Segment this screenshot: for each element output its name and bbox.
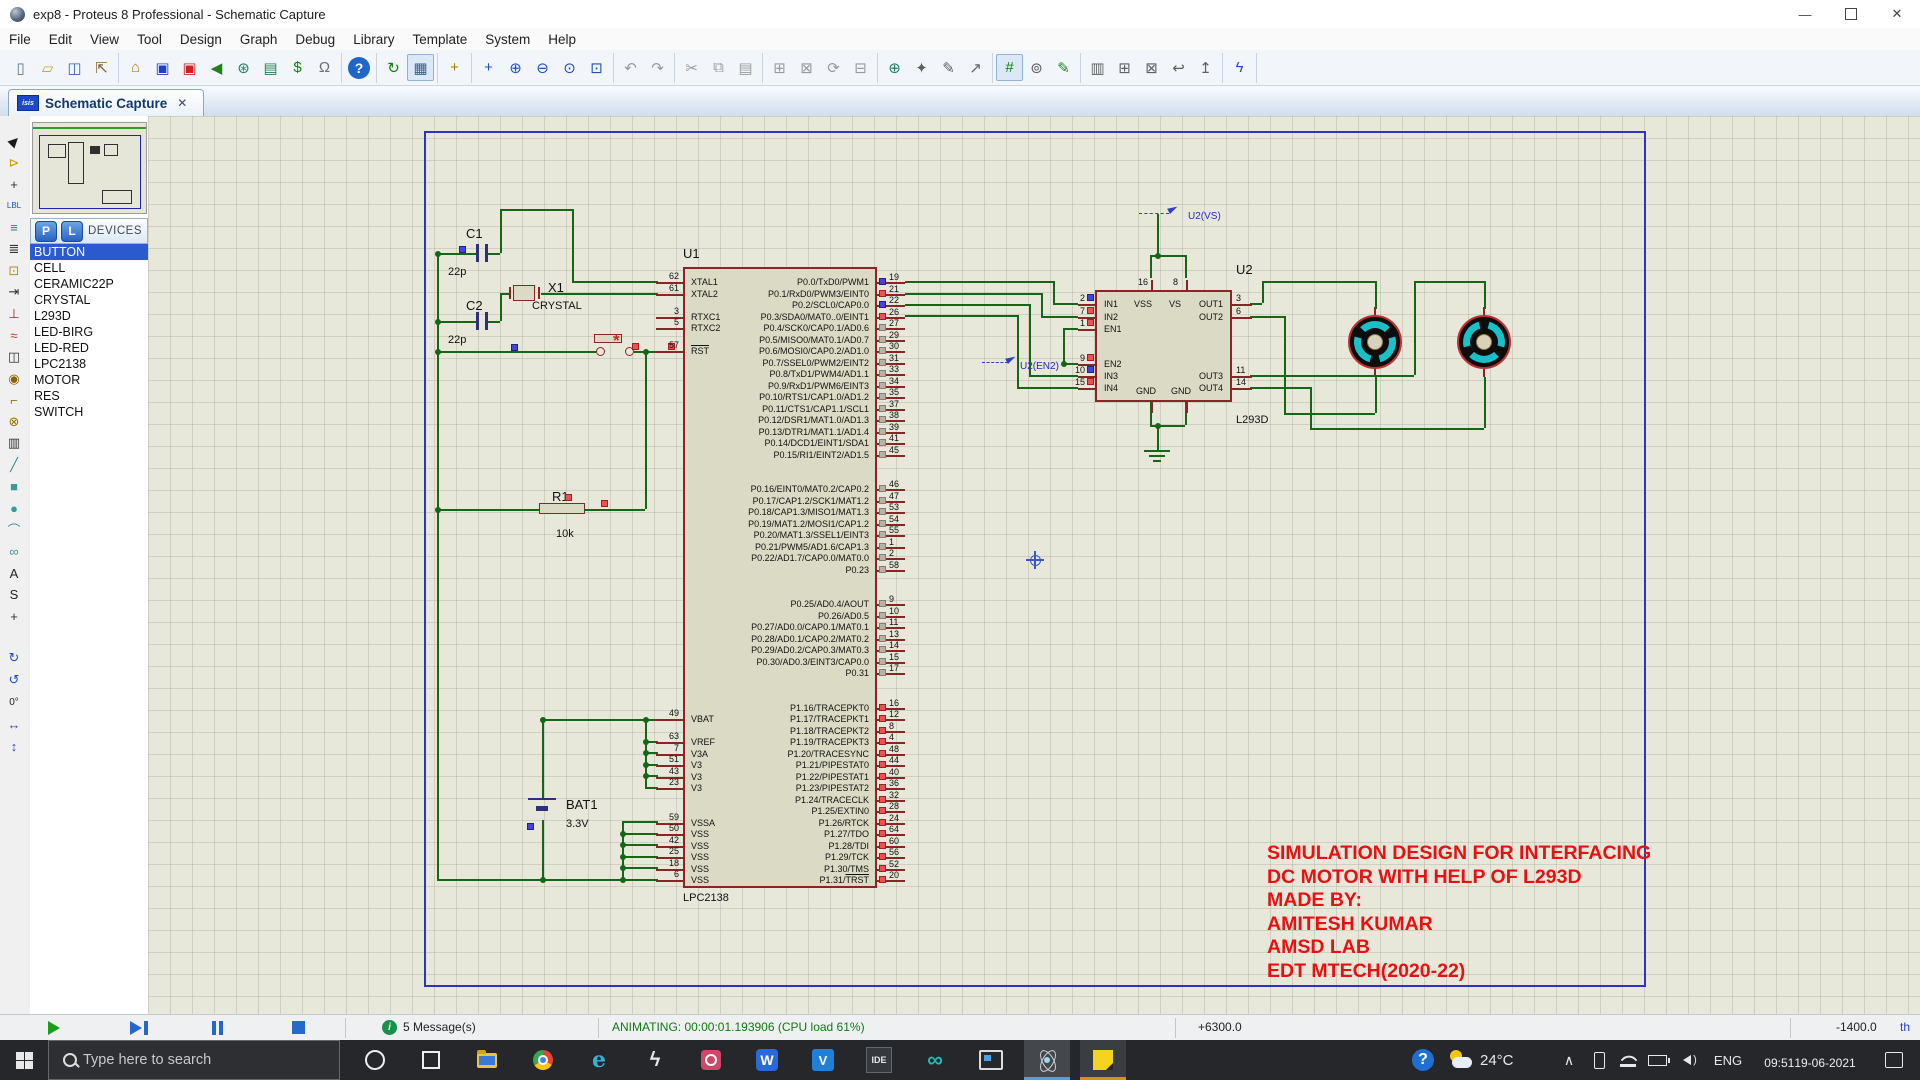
status-bar: i 5 Message(s) ANIMATING: 00:00:01.19390… — [0, 1014, 1920, 1041]
zoom-area-icon[interactable]: ⊡ — [583, 54, 610, 81]
menu-template[interactable]: Template — [403, 32, 476, 47]
taskbar-date: 19-06-2021 — [1794, 1055, 1855, 1072]
chrome-icon — [533, 1050, 553, 1070]
toolbar-group: +⊕⊖⊙⊡ — [472, 53, 614, 83]
taskbar-item-vscode[interactable]: V — [800, 1040, 846, 1080]
import-file-icon[interactable]: ⇱ — [88, 54, 115, 81]
packaging-tool-icon[interactable]: ✎ — [935, 54, 962, 81]
task-view-icon — [422, 1051, 440, 1069]
device-item-button[interactable]: BUTTON — [30, 244, 148, 260]
maximize-button[interactable] — [1828, 0, 1874, 28]
mode-toolbar: ▶⊳+LBL≡≣⊡⇥⊥≈◫◉⌐⊗▥╱■●⌒∞AS+↻↺0°↔↕ — [0, 116, 31, 1014]
taskbar-item-app-pink[interactable] — [688, 1040, 734, 1080]
2d-text-mode-icon[interactable]: A — [3, 563, 25, 583]
ares-module-icon[interactable]: ▣ — [176, 54, 203, 81]
device-item-switch[interactable]: SWITCH — [30, 404, 148, 420]
isis-icon: isis — [17, 95, 39, 111]
status-suffix: th — [1900, 1020, 1910, 1034]
menu-design[interactable]: Design — [171, 32, 231, 47]
message-count[interactable]: 5 Message(s) — [403, 1020, 476, 1034]
cursor-y-coordinate: -1400.0 — [1836, 1020, 1877, 1034]
search-icon — [63, 1053, 77, 1067]
taskbar-item-zap[interactable]: ϟ — [632, 1040, 678, 1080]
buses-mode-icon[interactable]: ≣ — [3, 239, 25, 259]
schematic-canvas[interactable] — [148, 116, 1920, 1014]
subcircuit-mode-icon[interactable]: ⊡ — [3, 261, 25, 281]
paste-icon[interactable]: ▤ — [732, 54, 759, 81]
wire-label-mode-icon[interactable]: LBL — [3, 196, 25, 216]
tab-close-icon[interactable]: ✕ — [177, 96, 187, 110]
taskbar-item-file-explorer[interactable] — [464, 1040, 510, 1080]
file-explorer-icon — [477, 1053, 497, 1068]
virtual-instruments-mode-icon[interactable]: ▥ — [3, 433, 25, 453]
redo-icon[interactable]: ↷ — [644, 54, 671, 81]
animating-status: ANIMATING: 00:00:01.193906 (CPU load 61%… — [612, 1020, 865, 1034]
gerber-view-icon[interactable]: ⊛ — [230, 54, 257, 81]
proteus-taskbar-icon — [1035, 1048, 1059, 1072]
temperature-label: 24°C — [1480, 1052, 1514, 1069]
design-explorer-icon[interactable]: ▤ — [257, 54, 284, 81]
origin-icon[interactable]: + — [441, 54, 468, 81]
volume-tray-icon[interactable]: ) — [1676, 1040, 1704, 1080]
redraw-icon[interactable]: ↻ — [380, 54, 407, 81]
toolbar-group: ✂⧉▤ — [675, 53, 763, 83]
copy-icon[interactable]: ⧉ — [705, 54, 732, 81]
block-copy-icon[interactable]: ⊞ — [766, 54, 793, 81]
overview-sheet-rect — [39, 135, 141, 209]
window-title: exp8 - Proteus 8 Professional - Schemati… — [33, 7, 326, 22]
taskbar-item-ide[interactable]: IDE — [856, 1040, 902, 1080]
generator-mode-icon[interactable]: ◉ — [3, 369, 25, 389]
menu-edit[interactable]: Edit — [40, 32, 81, 47]
toolbar-group: ⊞⊠⟳⊟ — [763, 53, 878, 83]
selection-pointer-icon[interactable]: ▶ — [0, 126, 29, 156]
device-list: BUTTONCELLCERAMIC22PCRYSTALL293DLED-BIRG… — [30, 244, 148, 1014]
devices-header: P L DEVICES — [30, 218, 148, 244]
close-button[interactable]: ✕ — [1874, 0, 1920, 28]
help-tray-icon[interactable]: ? — [1408, 1040, 1438, 1080]
notification-center-icon[interactable] — [1872, 1040, 1916, 1080]
taskbar-item-infinity[interactable]: ∞ — [912, 1040, 958, 1080]
start-button[interactable] — [0, 1040, 48, 1080]
home-icon[interactable]: ⌂ — [122, 54, 149, 81]
proteus-window: exp8 - Proteus 8 Professional - Schemati… — [0, 0, 1920, 1080]
menu-debug[interactable]: Debug — [286, 32, 344, 47]
design-properties-icon[interactable]: ▥ — [1084, 54, 1111, 81]
notes-icon — [1093, 1050, 1113, 1070]
junction-dot-mode-icon[interactable]: + — [3, 174, 25, 194]
windows-logo-icon — [16, 1052, 33, 1069]
pick-parts-icon[interactable]: ⊕ — [881, 54, 908, 81]
device-pins-mode-icon[interactable]: ⊥ — [3, 304, 25, 324]
menu-library[interactable]: Library — [344, 32, 403, 47]
tab-label: Schematic Capture — [45, 96, 167, 111]
zoom-all-icon[interactable]: ⊙ — [556, 54, 583, 81]
library-button[interactable]: L — [61, 221, 83, 242]
restore-icon — [1845, 8, 1857, 20]
block-rotate-icon[interactable]: ⟳ — [820, 54, 847, 81]
tab-bar: isis Schematic Capture ✕ — [0, 86, 1920, 117]
toolbar-group: ⌂▣▣◀⊛▤$Ω — [119, 53, 342, 83]
toolbar-group: ? — [342, 53, 377, 83]
menu-system[interactable]: System — [476, 32, 539, 47]
overview-green-line — [33, 127, 146, 129]
open-file-icon[interactable]: ▱ — [34, 54, 61, 81]
device-item-l293d[interactable]: L293D — [30, 308, 148, 324]
new-file-icon[interactable]: ▯ — [7, 54, 34, 81]
isis-module-icon[interactable]: ▣ — [149, 54, 176, 81]
bill-of-materials-icon[interactable]: $ — [284, 54, 311, 81]
wire-autorouter-icon[interactable]: # — [996, 54, 1023, 81]
pick-devices-button[interactable]: P — [35, 221, 57, 242]
text-script-mode-icon[interactable]: ≡ — [3, 217, 25, 237]
object-selector-panel: P L DEVICES BUTTONCELLCERAMIC22PCRYSTALL… — [30, 116, 149, 1014]
rotate-clockwise-icon[interactable]: ↻ — [3, 648, 25, 668]
undo-icon[interactable]: ↶ — [617, 54, 644, 81]
windows-taskbar: Type here to search eϟWVIDE∞ ?24°C∧)ENG0… — [0, 1040, 1920, 1080]
device-item-crystal[interactable]: CRYSTAL — [30, 292, 148, 308]
cortana-icon — [365, 1050, 385, 1070]
search-placeholder: Type here to search — [83, 1052, 211, 1068]
device-item-cell[interactable]: CELL — [30, 260, 148, 276]
zoom-in-icon[interactable]: ⊕ — [502, 54, 529, 81]
menu-tool[interactable]: Tool — [128, 32, 171, 47]
message-info-icon[interactable]: i — [382, 1020, 397, 1035]
infinity-icon: ∞ — [927, 1047, 943, 1073]
phone-tray-icon[interactable] — [1586, 1040, 1612, 1080]
taskbar-item-cortana[interactable] — [352, 1040, 398, 1080]
taskbar-item-task-view[interactable] — [408, 1040, 454, 1080]
menu-bar: FileEditViewToolDesignGraphDebugLibraryT… — [0, 28, 1920, 51]
3d-view-icon[interactable]: ◀ — [203, 54, 230, 81]
minimize-button[interactable]: — — [1782, 0, 1828, 28]
tab-schematic-capture[interactable]: isis Schematic Capture ✕ — [8, 89, 204, 116]
device-item-res[interactable]: RES — [30, 388, 148, 404]
toolbar-group: #⊚✎ — [993, 53, 1081, 83]
taskbar-item-chrome[interactable] — [520, 1040, 566, 1080]
weather-tray-item[interactable]: 24°C — [1448, 1040, 1548, 1080]
taskbar-item-proteus[interactable] — [1024, 1040, 1070, 1080]
tape-recorder-mode-icon[interactable]: ◫ — [3, 347, 25, 367]
help-icon[interactable]: ? — [348, 57, 370, 79]
menu-view[interactable]: View — [81, 32, 128, 47]
weather-icon — [1448, 1050, 1474, 1070]
mirror-horizontal-icon[interactable]: ↔ — [3, 714, 25, 734]
menu-help[interactable]: Help — [539, 32, 585, 47]
zoom-out-icon[interactable]: ⊖ — [529, 54, 556, 81]
taskbar-item-wps[interactable]: W — [744, 1040, 790, 1080]
title-bar: exp8 - Proteus 8 Professional - Schemati… — [0, 0, 1920, 29]
taskbar-item-notes[interactable] — [1080, 1040, 1126, 1080]
property-assignment-icon[interactable]: ✎ — [1050, 54, 1077, 81]
cursor-x-coordinate: +6300.0 — [1198, 1020, 1242, 1034]
pan-icon[interactable]: + — [475, 54, 502, 81]
menu-graph[interactable]: Graph — [231, 32, 287, 47]
tray-chevron-up[interactable]: ∧ — [1556, 1040, 1582, 1080]
electrical-report-icon[interactable]: Ω — [311, 54, 338, 81]
voltage-probe-mode-icon[interactable]: ⌐ — [3, 390, 25, 410]
rotation-angle-icon[interactable]: 0° — [3, 692, 25, 712]
ide-icon: IDE — [866, 1047, 892, 1073]
toolbar-group: ↻▦ — [377, 53, 438, 83]
network-tray-icon[interactable] — [1614, 1040, 1642, 1080]
taskbar-search-box[interactable]: Type here to search — [48, 1040, 340, 1080]
language-tray-item[interactable]: ENG — [1706, 1040, 1750, 1080]
toolbar-group: ▯▱◫⇱ — [4, 53, 119, 83]
edge-icon: e — [592, 1047, 606, 1073]
device-item-led-birg[interactable]: LED-BIRG — [30, 324, 148, 340]
terminals-mode-icon[interactable]: ⇥ — [3, 282, 25, 302]
2d-symbol-mode-icon[interactable]: S — [3, 585, 25, 605]
remove-sheet-icon[interactable]: ⊠ — [1138, 54, 1165, 81]
device-item-lpc2138[interactable]: LPC2138 — [30, 356, 148, 372]
toolbar-group: ▥⊞⊠↩↥ — [1081, 53, 1223, 83]
search-tag-icon[interactable]: ⊚ — [1023, 54, 1050, 81]
block-delete-icon[interactable]: ⊟ — [847, 54, 874, 81]
vscode-icon: V — [812, 1049, 834, 1071]
taskbar-item-edge[interactable]: e — [576, 1040, 622, 1080]
rotate-anticlockwise-icon[interactable]: ↺ — [3, 670, 25, 690]
grid-toggle-icon[interactable]: ▦ — [407, 54, 434, 81]
battery-tray-icon[interactable] — [1644, 1040, 1674, 1080]
2d-line-mode-icon[interactable]: ╱ — [3, 455, 25, 475]
snip-tool-icon — [979, 1050, 1003, 1070]
current-probe-mode-icon[interactable]: ⊗ — [3, 412, 25, 432]
stop-button[interactable] — [292, 1021, 305, 1034]
goto-sheet-icon[interactable]: ↩ — [1165, 54, 1192, 81]
zoom-to-child-icon[interactable]: ↥ — [1192, 54, 1219, 81]
device-item-motor[interactable]: MOTOR — [30, 372, 148, 388]
menu-file[interactable]: File — [0, 32, 40, 47]
pink-app-icon — [701, 1050, 721, 1070]
taskbar-item-snip[interactable] — [968, 1040, 1014, 1080]
new-sheet-icon[interactable]: ⊞ — [1111, 54, 1138, 81]
mirror-vertical-icon[interactable]: ↕ — [3, 736, 25, 756]
wps-icon: W — [756, 1049, 778, 1071]
device-item-ceramic22p[interactable]: CERAMIC22P — [30, 276, 148, 292]
2d-box-mode-icon[interactable]: ■ — [3, 477, 25, 497]
toolbar-group: ⊕✦✎↗ — [878, 53, 993, 83]
toolbar-group: + — [438, 53, 472, 83]
proteus-app-icon — [10, 7, 25, 22]
toolbar-group: ϟ — [1223, 53, 1257, 83]
clock-tray-item[interactable]: 09:5119-06-2021 — [1756, 1043, 1864, 1080]
cut-icon[interactable]: ✂ — [678, 54, 705, 81]
main-toolbar: ▯▱◫⇱⌂▣▣◀⊛▤$Ω?↻▦++⊕⊖⊙⊡↶↷✂⧉▤⊞⊠⟳⊟⊕✦✎↗#⊚✎▥⊞⊠… — [0, 50, 1920, 86]
devices-title: DEVICES — [83, 225, 147, 237]
device-item-led-red[interactable]: LED-RED — [30, 340, 148, 356]
lightning-icon: ϟ — [650, 1049, 661, 1072]
2d-markers-mode-icon[interactable]: + — [3, 606, 25, 626]
decompose-icon[interactable]: ↗ — [962, 54, 989, 81]
2d-circle-mode-icon[interactable]: ● — [3, 498, 25, 518]
save-file-icon[interactable]: ◫ — [61, 54, 88, 81]
graph-mode-icon[interactable]: ≈ — [3, 325, 25, 345]
block-move-icon[interactable]: ⊠ — [793, 54, 820, 81]
play-button[interactable] — [48, 1021, 60, 1035]
component-mode-icon[interactable]: ⊳ — [3, 153, 25, 173]
schematic-overview-thumbnail[interactable] — [32, 122, 147, 214]
2d-arc-mode-icon[interactable]: ⌒ — [3, 520, 25, 540]
2d-path-mode-icon[interactable]: ∞ — [3, 541, 25, 561]
toolbar-group: ↶↷ — [614, 53, 675, 83]
taskbar-time: 09:51 — [1764, 1055, 1794, 1072]
electrical-rule-check-icon[interactable]: ϟ — [1226, 54, 1253, 81]
make-device-icon[interactable]: ✦ — [908, 54, 935, 81]
